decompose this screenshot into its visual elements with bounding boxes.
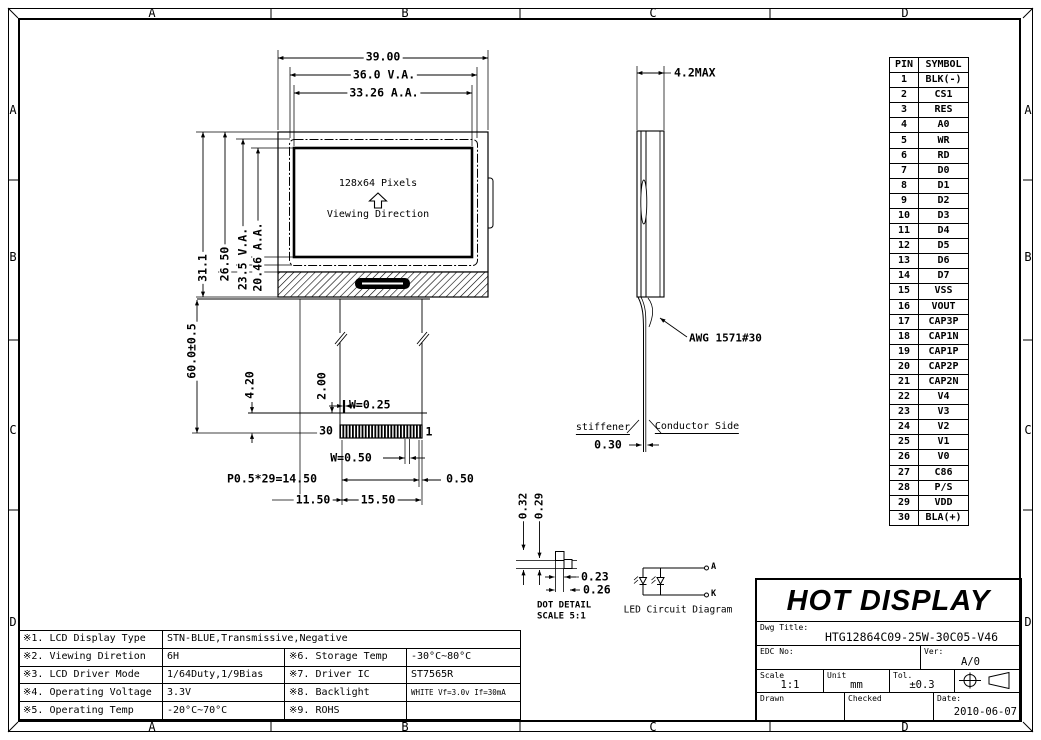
pin-table-row: 21 CAP2N [890, 374, 969, 389]
pin-table-row: 17 CAP3P [890, 314, 969, 329]
pin-symbol: CAP2N [919, 374, 969, 389]
pin-symbol: BLK(-) [919, 73, 969, 88]
viewing-direction-label: Viewing Direction [327, 210, 429, 220]
pin-table-row: 15 VSS [890, 284, 969, 299]
pin-number: 26 [890, 450, 919, 465]
spec-value [407, 702, 521, 720]
pin-number: 19 [890, 344, 919, 359]
pin-number: 28 [890, 480, 919, 495]
spec-label: ※1. LCD Display Type [19, 631, 163, 649]
spec-row: ※3. LCD Driver Mode 1/64Duty,1/9Bias ※7.… [19, 666, 521, 684]
pin-symbol: V3 [919, 405, 969, 420]
pin-table-row: 8 D1 [890, 178, 969, 193]
dim-pin-pitch: P0.5*29=14.50 [227, 473, 317, 485]
dim-aa-width: 33.26 A.A. [347, 87, 420, 99]
scale-value: 1:1 [757, 679, 823, 691]
spec-value: 3.3V [163, 684, 285, 702]
edc-no-label: EDC No: [760, 647, 794, 656]
spec-row: ※4. Operating Voltage 3.3V ※8. Backlight… [19, 684, 521, 702]
pin-number: 16 [890, 299, 919, 314]
pin-symbol: V2 [919, 420, 969, 435]
dim-dot-row1: 0.23 [581, 571, 609, 583]
dot-detail-title: DOT DETAIL [537, 602, 591, 611]
pin-symbol: BLA(+) [919, 510, 969, 525]
spec-value: 6H [163, 648, 285, 666]
pin-table-row: 18 CAP1N [890, 329, 969, 344]
pin-symbol: D0 [919, 163, 969, 178]
led-circuit-title: LED Circuit Diagram [624, 605, 733, 615]
pin-table-row: 25 V1 [890, 435, 969, 450]
pin-number: 10 [890, 208, 919, 223]
spec-table: ※1. LCD Display Type STN-BLUE,Transmissi… [18, 630, 521, 720]
pin-number: 9 [890, 193, 919, 208]
dot-detail-scale: SCALE 5:1 [537, 613, 586, 622]
title-block: HOT DISPLAY Dwg Title: HTG12864C09-25W-3… [755, 578, 1022, 722]
pin-number: 21 [890, 374, 919, 389]
conductor-side-label: Conductor Side [655, 422, 739, 434]
led-anode-label: A [711, 563, 716, 572]
dim-glass-height: 26.50 [219, 245, 231, 284]
pin-number: 18 [890, 329, 919, 344]
spec-label: ※5. Operating Temp [19, 702, 163, 720]
pin-symbol: C86 [919, 465, 969, 480]
pin-symbol: RES [919, 103, 969, 118]
pin-number: 14 [890, 269, 919, 284]
pin-number: 23 [890, 405, 919, 420]
date-value: 2010-06-07 [934, 706, 1017, 718]
pin-table-row: 16 VOUT [890, 299, 969, 314]
pin-table-row: 9 D2 [890, 193, 969, 208]
company-logo: HOT DISPLAY [757, 580, 1020, 622]
dim-connector-width: 15.50 [359, 494, 398, 506]
pin-number: 17 [890, 314, 919, 329]
pin-symbol: CAP2P [919, 359, 969, 374]
dim-thickness-max: 4.2MAX [674, 67, 716, 79]
pin-number: 25 [890, 435, 919, 450]
spec-value: ST7565R [407, 666, 521, 684]
pin-number: 11 [890, 224, 919, 239]
pin-table-header-row: PIN SYMBOL [890, 58, 969, 73]
wire-gauge-label: AWG 1571#30 [689, 333, 762, 344]
engineering-drawing-page: A B C D A B C D A B C D A B C D [0, 0, 1041, 740]
dim-trace-width: W=0.25 [349, 399, 391, 411]
pin-number: 29 [890, 495, 919, 510]
pin-symbol: D6 [919, 254, 969, 269]
pin-symbol: RD [919, 148, 969, 163]
pin-symbol: D2 [919, 193, 969, 208]
pin-number: 22 [890, 390, 919, 405]
pin-table-row: 30 BLA(+) [890, 510, 969, 525]
dim-tail-length: 2.00 [316, 370, 328, 402]
pin-table-row: 22 V4 [890, 390, 969, 405]
spec-label: ※9. ROHS [285, 702, 407, 720]
stiffener-label: stiffener [576, 423, 630, 435]
pin-table-row: 24 V2 [890, 420, 969, 435]
pin-symbol: V1 [919, 435, 969, 450]
pin-table-header-pin: PIN [890, 58, 919, 73]
version-value: A/0 [921, 656, 1020, 668]
pin-number: 27 [890, 465, 919, 480]
pin-number: 30 [890, 510, 919, 525]
unit-value: mm [824, 679, 889, 691]
spec-row: ※1. LCD Display Type STN-BLUE,Transmissi… [19, 631, 521, 649]
tolerance-value: ±0.3 [890, 679, 954, 691]
pin-symbol: A0 [919, 118, 969, 133]
pin-number: 6 [890, 148, 919, 163]
pin-table-row: 29 VDD [890, 495, 969, 510]
spec-label: ※6. Storage Temp [285, 648, 407, 666]
pin-number: 8 [890, 178, 919, 193]
pin-table-row: 26 V0 [890, 450, 969, 465]
pin-table-row: 27 C86 [890, 465, 969, 480]
pin-symbol: V4 [919, 390, 969, 405]
spec-value: WHITE Vf=3.0v If=30mA [407, 684, 521, 702]
pin-table-row: 11 D4 [890, 224, 969, 239]
pin-symbol: D4 [919, 224, 969, 239]
dim-overall-height: 31.1 [197, 252, 209, 284]
pin-symbol: CS1 [919, 88, 969, 103]
pin-symbol: P/S [919, 480, 969, 495]
spec-row: ※2. Viewing Diretion 6H ※6. Storage Temp… [19, 648, 521, 666]
pin-table-row: 19 CAP1P [890, 344, 969, 359]
spec-label: ※3. LCD Driver Mode [19, 666, 163, 684]
drawing-title: HTG12864C09-25W-30C05-V46 [807, 630, 1016, 644]
pin-number: 20 [890, 359, 919, 374]
projection-symbol-icon [955, 670, 1017, 691]
pin-number: 2 [890, 88, 919, 103]
spec-label: ※7. Driver IC [285, 666, 407, 684]
pin-table-row: 4 A0 [890, 118, 969, 133]
pin-number: 1 [890, 73, 919, 88]
pin-symbol: D3 [919, 208, 969, 223]
pin-symbol: D1 [919, 178, 969, 193]
spec-value: STN-BLUE,Transmissive,Negative [163, 631, 521, 649]
dim-dot-col2: 0.29 [534, 491, 545, 522]
pin-table-row: 1 BLK(-) [890, 73, 969, 88]
dim-aa-height: 20.46 A.A. [252, 220, 264, 293]
dwg-title-label: Dwg Title: [760, 623, 808, 632]
dim-stiffener-offset: 4.20 [244, 369, 256, 401]
connector-pin-30: 30 [317, 425, 335, 437]
pin-number: 5 [890, 133, 919, 148]
spec-label: ※4. Operating Voltage [19, 684, 163, 702]
drawn-label: Drawn [760, 694, 784, 703]
pin-number: 15 [890, 284, 919, 299]
led-cathode-label: K [711, 590, 716, 599]
pin-table-row: 20 CAP2P [890, 359, 969, 374]
pin-symbol: VDD [919, 495, 969, 510]
pin-number: 7 [890, 163, 919, 178]
spec-label: ※2. Viewing Diretion [19, 648, 163, 666]
date-label: Date: [937, 694, 961, 703]
pin-symbol: CAP1P [919, 344, 969, 359]
pin-symbol: CAP3P [919, 314, 969, 329]
dim-fpc-length: 60.0±0.5 [186, 321, 198, 380]
pin-table-row: 12 D5 [890, 239, 969, 254]
spec-label: ※8. Backlight [285, 684, 407, 702]
pin-symbol: VSS [919, 284, 969, 299]
pin-number: 24 [890, 420, 919, 435]
pin-symbol: D7 [919, 269, 969, 284]
pin-symbol: D5 [919, 239, 969, 254]
pin-table-row: 13 D6 [890, 254, 969, 269]
dim-va-height: 23.5 V.A. [237, 226, 249, 292]
spec-value: 1/64Duty,1/9Bias [163, 666, 285, 684]
spec-row: ※5. Operating Temp -20°C~70°C ※9. ROHS [19, 702, 521, 720]
pin-number: 13 [890, 254, 919, 269]
pin-symbol: VOUT [919, 299, 969, 314]
pin-table-row: 3 RES [890, 103, 969, 118]
dim-dot-col1: 0.32 [518, 491, 529, 522]
dim-end-margin: 0.50 [446, 473, 474, 485]
spec-value: -30°C~80°C [407, 648, 521, 666]
pin-table-row: 2 CS1 [890, 88, 969, 103]
dim-pin-width: W=0.50 [330, 452, 372, 464]
pin-table-row: 14 D7 [890, 269, 969, 284]
pin-number: 12 [890, 239, 919, 254]
pin-table-row: 28 P/S [890, 480, 969, 495]
pin-number: 3 [890, 103, 919, 118]
connector-pin-1: 1 [426, 426, 433, 438]
version-label: Ver: [924, 647, 943, 656]
dim-overall-width: 39.00 [364, 51, 403, 63]
pin-table-row: 7 D0 [890, 163, 969, 178]
pin-symbol: V0 [919, 450, 969, 465]
dim-dot-row2: 0.26 [583, 584, 611, 596]
pin-table-row: 5 WR [890, 133, 969, 148]
pin-table-header-symbol: SYMBOL [919, 58, 969, 73]
pixels-label: 128x64 Pixels [339, 179, 417, 189]
pin-table-row: 10 D3 [890, 208, 969, 223]
dim-connector-offset: 11.50 [294, 494, 333, 506]
dim-va-width: 36.0 V.A. [351, 69, 417, 81]
pin-symbol: WR [919, 133, 969, 148]
pin-table-row: 6 RD [890, 148, 969, 163]
pin-table: PIN SYMBOL 1 BLK(-) 2 CS1 3 RES [889, 57, 969, 526]
pin-table-row: 23 V3 [890, 405, 969, 420]
pin-number: 4 [890, 118, 919, 133]
dim-fpc-thickness: 0.30 [594, 439, 622, 451]
checked-label: Checked [848, 694, 882, 703]
spec-value: -20°C~70°C [163, 702, 285, 720]
pin-symbol: CAP1N [919, 329, 969, 344]
